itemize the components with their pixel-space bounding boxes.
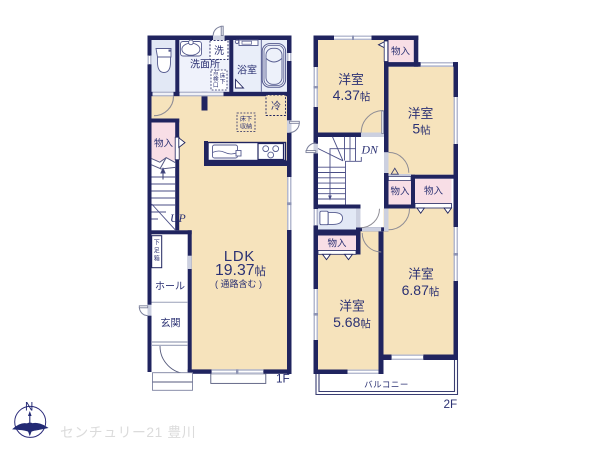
svg-text:物入: 物入 bbox=[391, 46, 411, 58]
svg-text:物入: 物入 bbox=[390, 186, 410, 198]
svg-text:床: 床 bbox=[220, 72, 226, 80]
svg-text:冷: 冷 bbox=[271, 100, 281, 113]
svg-text:1F: 1F bbox=[276, 372, 290, 386]
svg-text:箱: 箱 bbox=[154, 255, 160, 263]
svg-text:足: 足 bbox=[154, 248, 160, 255]
svg-text:洋室: 洋室 bbox=[408, 267, 434, 282]
svg-text:N: N bbox=[25, 402, 33, 414]
svg-text:洋室: 洋室 bbox=[338, 72, 364, 87]
svg-text:物入: 物入 bbox=[327, 238, 347, 250]
svg-text:玄関: 玄関 bbox=[161, 317, 181, 330]
svg-text:DN: DN bbox=[361, 143, 380, 157]
svg-text:洗: 洗 bbox=[214, 45, 224, 57]
svg-text:検: 検 bbox=[213, 75, 219, 83]
svg-text:2F: 2F bbox=[444, 397, 458, 411]
svg-text:物入: 物入 bbox=[154, 138, 174, 150]
svg-text:下: 下 bbox=[220, 79, 226, 86]
svg-text:ホール: ホール bbox=[155, 281, 185, 293]
svg-text:UP: UP bbox=[170, 211, 186, 225]
svg-text:口: 口 bbox=[213, 82, 219, 89]
svg-text:物入: 物入 bbox=[424, 185, 444, 197]
svg-text:( 通路含む ): ( 通路含む ) bbox=[215, 278, 262, 289]
svg-text:洗面所: 洗面所 bbox=[190, 59, 220, 71]
svg-text:下: 下 bbox=[154, 240, 160, 247]
svg-text:収納: 収納 bbox=[240, 123, 252, 131]
svg-text:浴室: 浴室 bbox=[237, 64, 257, 77]
svg-text:センチュリー21 豊川: センチュリー21 豊川 bbox=[60, 425, 196, 440]
svg-text:洋室: 洋室 bbox=[408, 106, 434, 121]
svg-text:床下: 床下 bbox=[240, 115, 252, 123]
svg-text:バルコニー: バルコニー bbox=[364, 380, 409, 390]
svg-text:洋室: 洋室 bbox=[339, 299, 365, 314]
